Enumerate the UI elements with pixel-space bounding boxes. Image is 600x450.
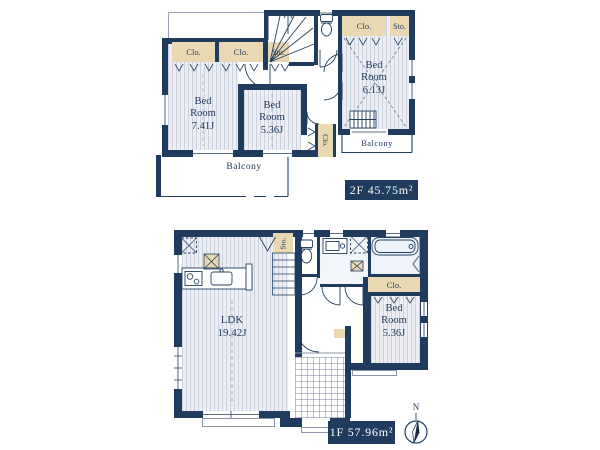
genkan-tile-floor bbox=[295, 357, 345, 418]
compass-north-label: N bbox=[408, 402, 424, 413]
window-gap bbox=[174, 255, 182, 273]
area-badge-2f: 2F 45.75m² bbox=[345, 180, 418, 200]
wall-segment bbox=[162, 150, 318, 157]
closet-label: Clo. bbox=[357, 21, 371, 31]
area-badge-1f: 1F 57.96m² bbox=[328, 421, 395, 444]
room-label-bedroom-536-1f: Bed Room 5.36J bbox=[365, 303, 423, 340]
wall-segment bbox=[264, 16, 268, 42]
closet-label: Clo. bbox=[321, 134, 330, 147]
wall-segment bbox=[363, 292, 428, 296]
window-gap bbox=[409, 83, 415, 99]
wall-segment bbox=[345, 326, 351, 418]
wall-segment bbox=[289, 62, 314, 66]
compass-icon bbox=[405, 413, 427, 444]
window-gap bbox=[330, 230, 343, 237]
wall-segment bbox=[345, 363, 428, 370]
closet-label: Clo. bbox=[186, 47, 200, 57]
wall-segment bbox=[317, 230, 320, 278]
kitchen-cabinet-marker bbox=[204, 254, 219, 269]
balcony-label-side: Balcony bbox=[342, 138, 412, 148]
floor-plan-canvas: Clo. Clo. Sto. Clo. Sto. Clo. Bed Room 7… bbox=[0, 0, 600, 450]
window-gap bbox=[263, 150, 292, 157]
wall-segment bbox=[420, 230, 428, 370]
wall-segment bbox=[295, 230, 302, 357]
room-label-bedroom-536-2f: Bed Room 5.36J bbox=[242, 100, 302, 137]
closet-label: Clo. bbox=[234, 47, 248, 57]
window-gap bbox=[162, 95, 168, 125]
room-label-bedroom-741: Bed Room 7.41J bbox=[173, 96, 233, 133]
window-gap bbox=[386, 230, 400, 237]
room-label-ldk: LDK 19.42J bbox=[202, 314, 262, 340]
bedroom-step bbox=[352, 370, 397, 376]
terrace-step bbox=[202, 418, 275, 427]
storage-2f-stairs: Sto. bbox=[268, 42, 289, 62]
wall-segment bbox=[333, 124, 336, 157]
washer-marker bbox=[351, 261, 363, 271]
closet-2f-left-2: Clo. bbox=[219, 42, 263, 62]
window-gap bbox=[303, 230, 314, 237]
storage-2f-right: Sto. bbox=[390, 16, 409, 36]
bathroom-floor bbox=[371, 237, 420, 274]
toilet-icon-1f bbox=[301, 240, 313, 263]
window-gap bbox=[320, 10, 332, 16]
roof-void-area bbox=[168, 12, 269, 40]
toilet-icon bbox=[321, 15, 333, 37]
wall-segment bbox=[320, 284, 368, 287]
entrance-door-gap bbox=[302, 418, 330, 427]
closet-2f-left-1: Clo. bbox=[172, 42, 215, 62]
closet-2f-right: Clo. bbox=[342, 16, 386, 36]
wall-segment bbox=[297, 274, 317, 277]
wall-segment bbox=[238, 84, 307, 90]
storage-label: Sto. bbox=[278, 237, 287, 249]
balcony-label-main: Balcony bbox=[204, 162, 284, 173]
window-gap bbox=[350, 129, 388, 135]
wall-segment bbox=[314, 10, 318, 65]
storage-label: Sto. bbox=[272, 48, 285, 57]
room-label-bedroom-613: Bed Room 6.13J bbox=[344, 60, 404, 97]
storage-label: Sto. bbox=[393, 22, 406, 31]
shoe-cabinet bbox=[334, 329, 345, 338]
closet-label: Clo. bbox=[387, 280, 401, 290]
window-gap bbox=[193, 150, 233, 157]
closet-2f-vertical: Clo. bbox=[318, 124, 333, 157]
closet-1f: Clo. bbox=[368, 277, 420, 292]
window-gap bbox=[203, 411, 259, 418]
wall-segment bbox=[156, 155, 161, 197]
storage-1f-under-stairs: Sto. bbox=[273, 233, 293, 253]
window-gap bbox=[174, 347, 182, 389]
window-gap bbox=[409, 60, 415, 76]
